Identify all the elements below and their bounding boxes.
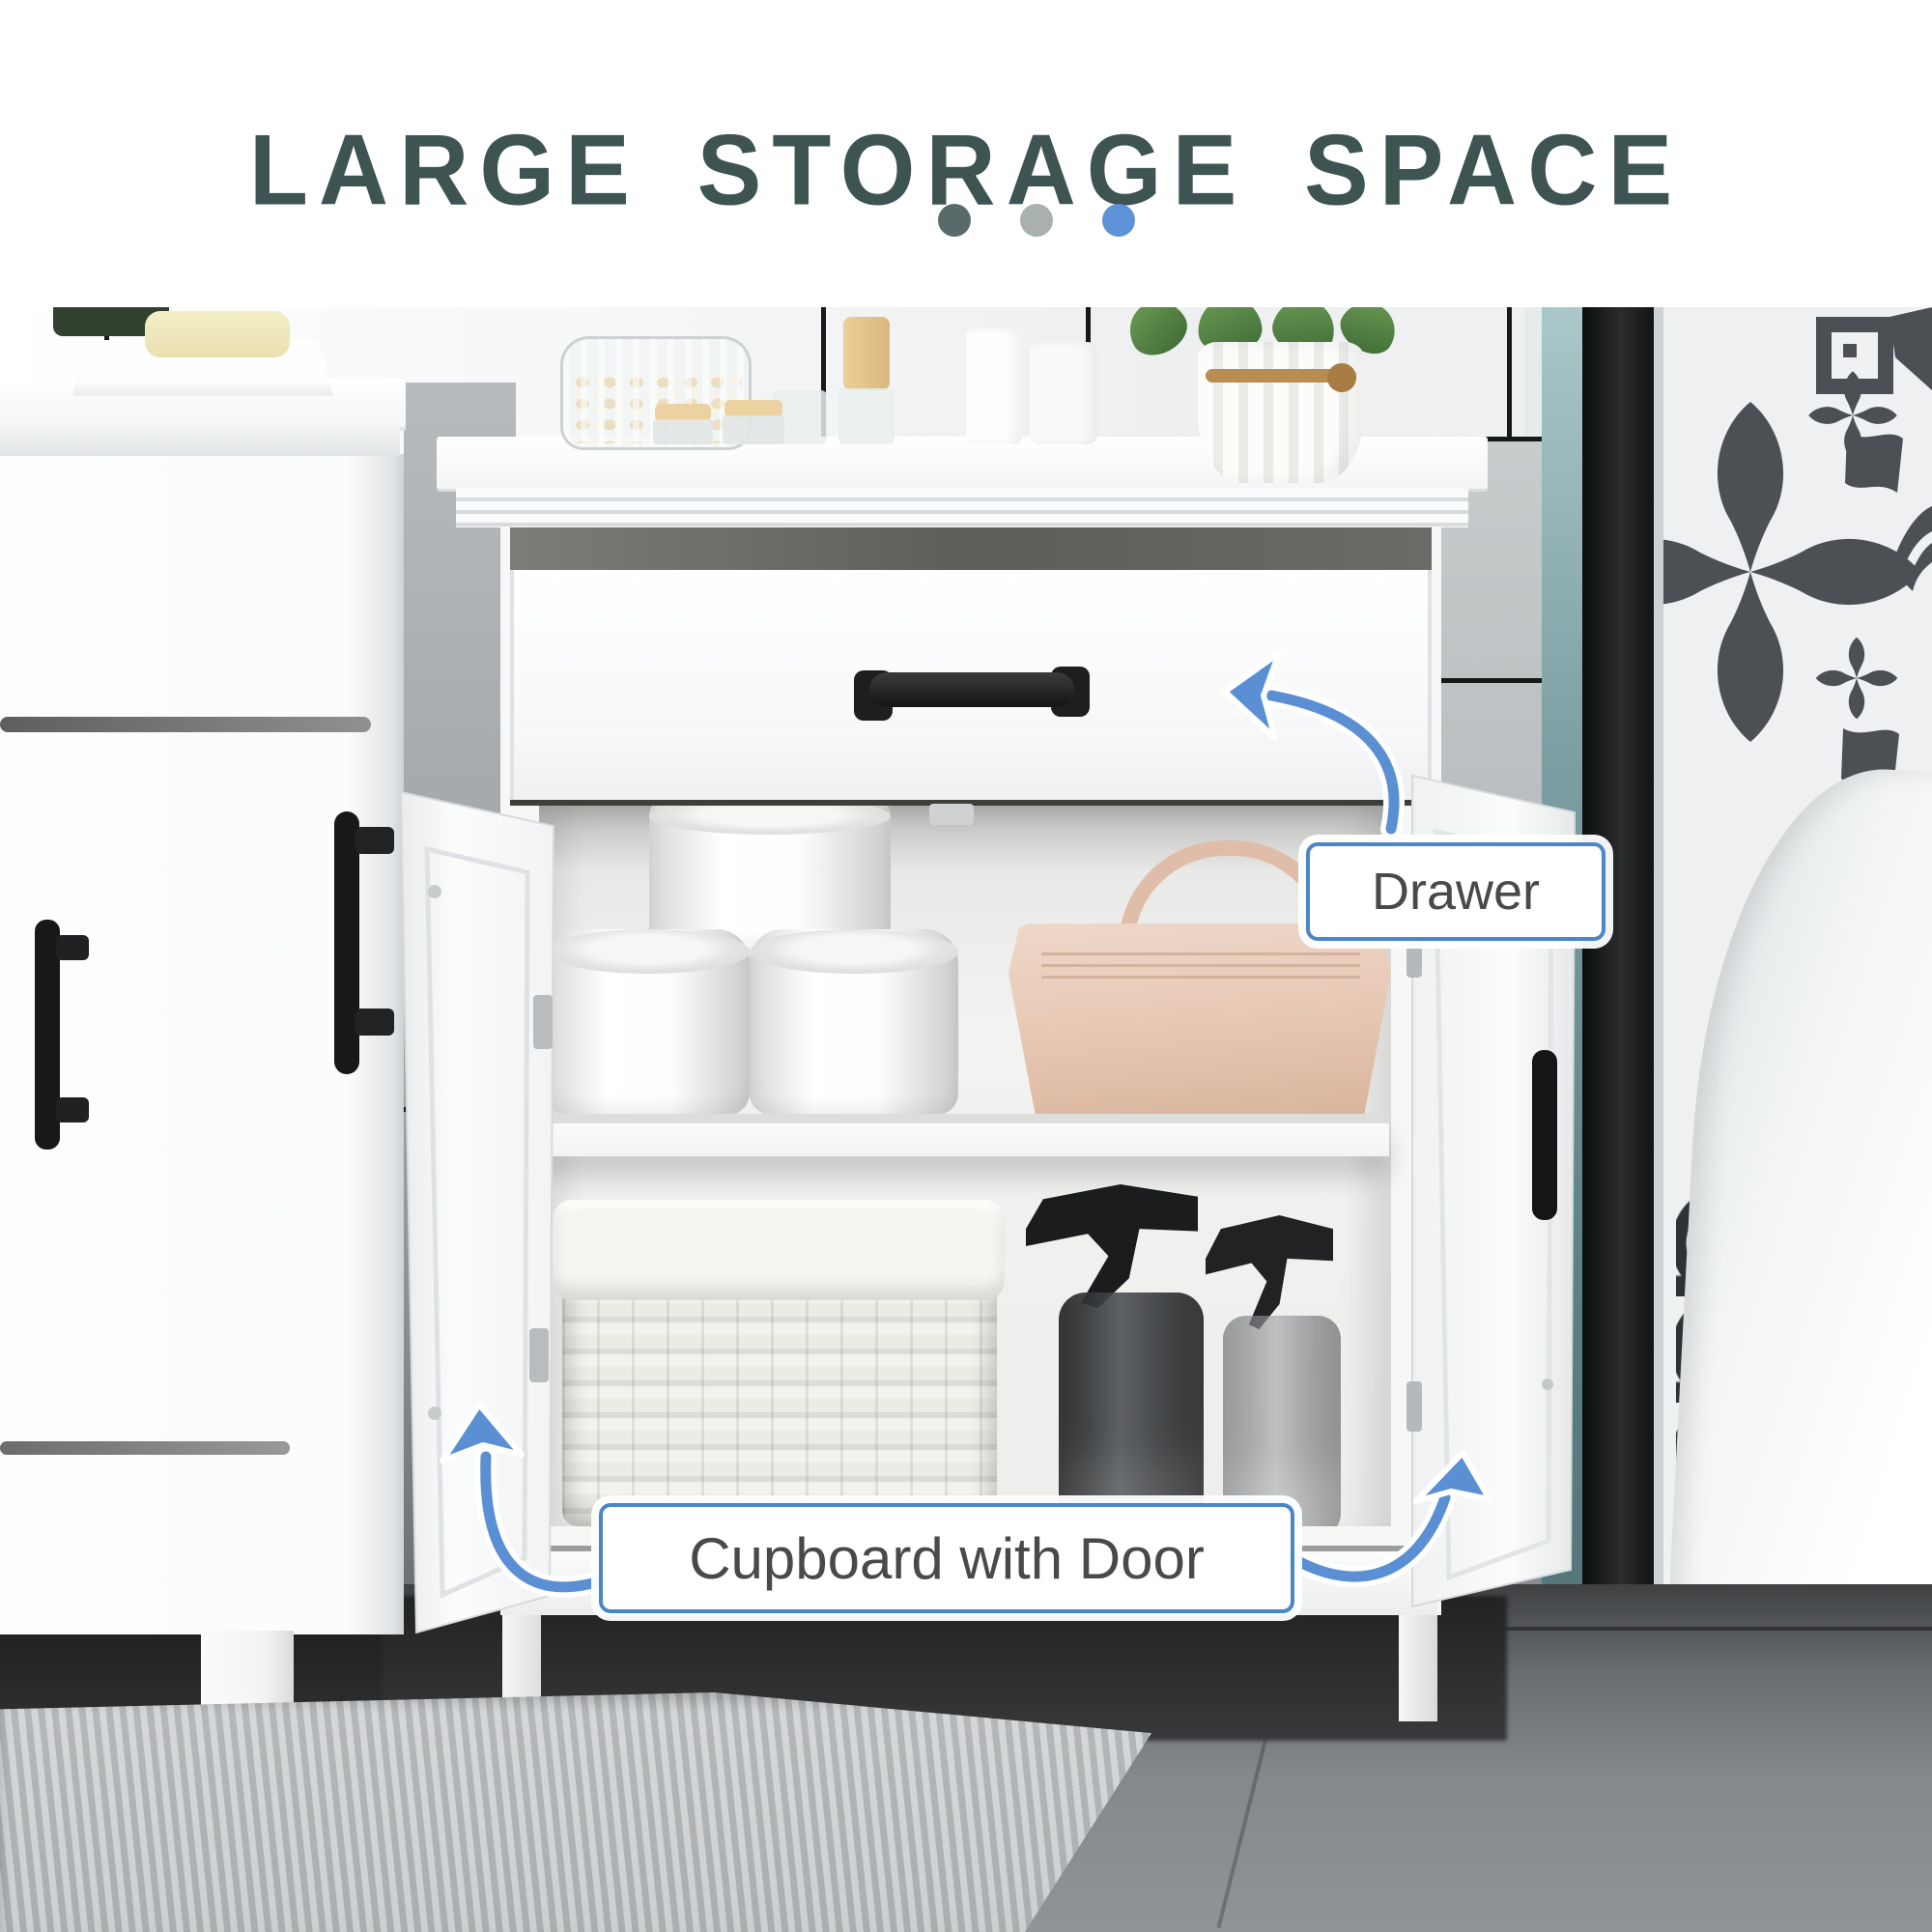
callout-arrows: [0, 0, 1932, 1932]
cupboard-label-text: Cupboard with Door: [689, 1525, 1205, 1592]
drawer-label: Drawer: [1306, 842, 1605, 941]
product-feature-image: LARGE STORAGE SPACE: [0, 0, 1932, 1932]
cupboard-label: Cupboard with Door: [599, 1503, 1294, 1613]
drawer-label-text: Drawer: [1372, 862, 1540, 922]
arrowhead-right-door: [1416, 1453, 1490, 1501]
